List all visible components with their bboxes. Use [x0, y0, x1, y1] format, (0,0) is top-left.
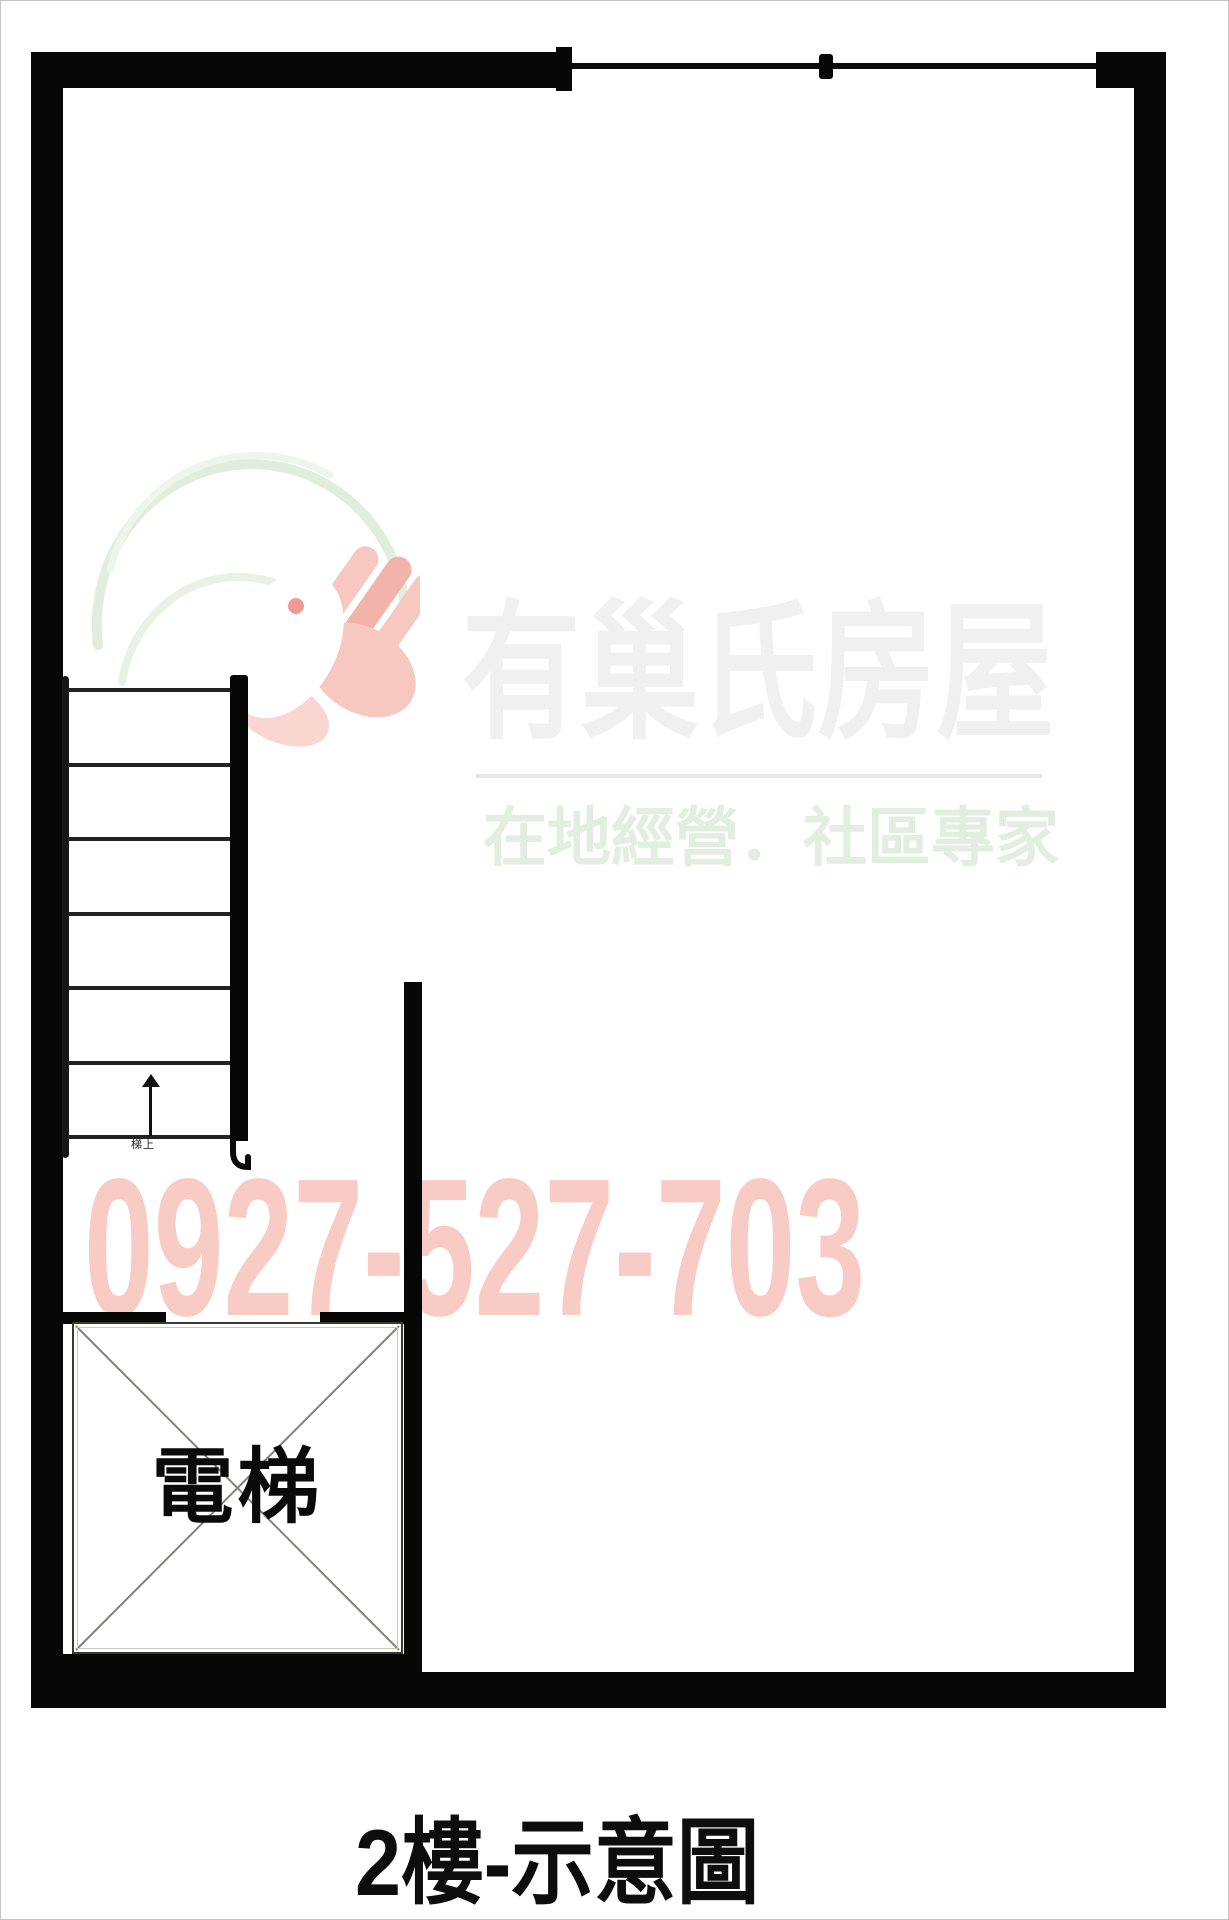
watermark-divider-line [476, 774, 1042, 778]
wall-left [31, 52, 63, 1708]
wall-corner-top-right [1096, 52, 1166, 88]
page-title: 2樓-示意圖 [355, 1816, 759, 1910]
stair-direction-note: 梯上 [131, 1139, 155, 1151]
elevator-bottom-wall [31, 1654, 422, 1708]
floor-plan-page: 有巢氏房屋 在地經營．社區專家 0927-527-703 梯上 電梯 2樓-示意… [0, 0, 1229, 1920]
stair-side-wall [230, 675, 248, 1141]
stair-direction-arrow-head [142, 1074, 160, 1087]
elevator-label: 電梯 [74, 1438, 401, 1538]
elevator-shaft-box: 電梯 [72, 1322, 403, 1654]
stair-direction-arrow-shaft [149, 1086, 152, 1136]
brand-watermark-text: 有巢氏房屋 [462, 598, 1055, 748]
stair-tread [68, 763, 230, 767]
phone-number-watermark: 0927-527-703 [84, 1150, 865, 1346]
stair-tread [68, 986, 230, 990]
stair-tread [68, 688, 230, 692]
wall-top [31, 52, 570, 88]
stair-tread [68, 837, 230, 841]
stair-wall-end-hook [228, 1138, 256, 1172]
stair-treads [68, 688, 230, 1140]
window-post-left [556, 47, 572, 91]
brand-slogan-watermark: 在地經營．社區專家 [483, 806, 1059, 870]
wall-interior-vertical [404, 982, 422, 1672]
window-glass-line [570, 63, 1096, 69]
window-post-mid [819, 54, 833, 79]
wall-right [1134, 52, 1166, 1708]
stair-tread [68, 1061, 230, 1065]
stair-tread [68, 912, 230, 916]
